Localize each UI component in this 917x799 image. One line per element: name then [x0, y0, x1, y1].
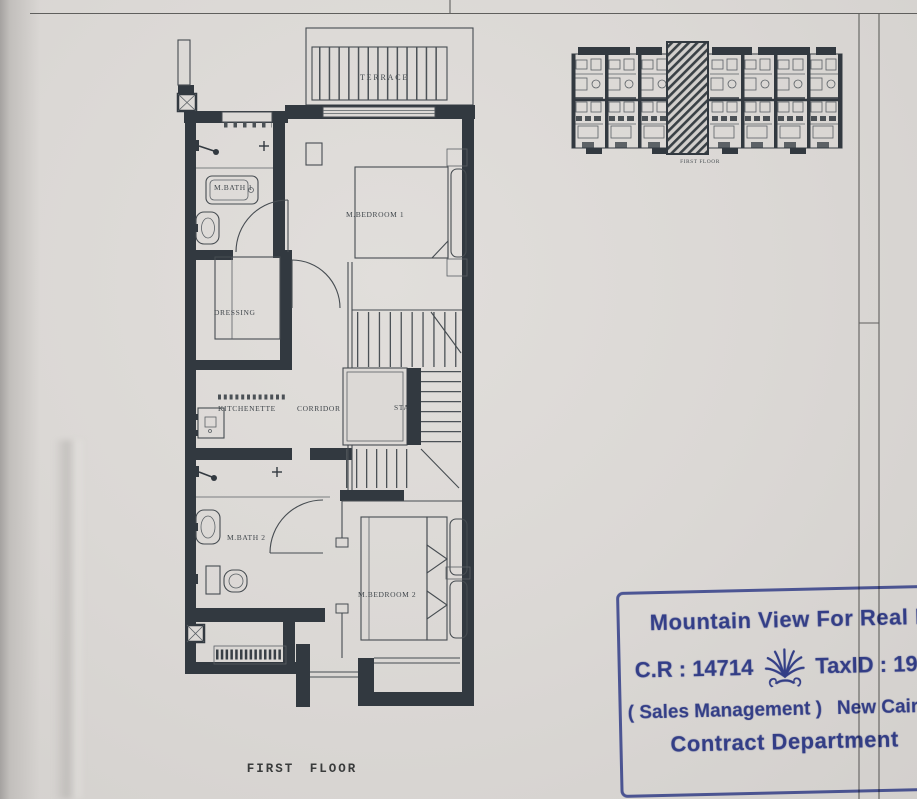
sink-icon: [194, 510, 220, 544]
mbath1-room: M.BATH 1: [194, 140, 273, 244]
utility-area: [214, 646, 286, 664]
keyplan-caption: FIRST FLOOR: [680, 159, 720, 165]
door-frame: [336, 538, 348, 547]
drain-cross-icon: [272, 467, 282, 477]
drain-cross-icon: [259, 141, 269, 151]
terrace-room: TERRACE: [306, 28, 473, 105]
room-label-mbedroom2: M.BEDROOM 2: [358, 590, 416, 599]
shaft-symbol-2: [187, 625, 204, 642]
bed-icon: [361, 517, 470, 640]
room-label-mbedroom1: M.BEDROOM 1: [346, 210, 404, 219]
stamp-branch: New Cairo Branc: [837, 695, 917, 720]
keyplan-core-hatch: [667, 42, 708, 154]
stamp-sales-management: ( Sales Management ): [628, 698, 823, 724]
stamp: Mountain View For Real Estat C.R : 14714…: [616, 584, 917, 798]
walls: [178, 85, 475, 707]
stamp-tax-id: TaxID : 1978: [815, 651, 917, 680]
door-arc: [270, 500, 323, 553]
stamp-department: Contract Department: [670, 725, 917, 758]
window: [323, 107, 435, 117]
sink-icon: [194, 212, 219, 244]
closet: [215, 257, 280, 339]
stamp-registration-row: C.R : 14714 TaxID : 1978: [634, 640, 917, 694]
palm-icon: [762, 644, 807, 691]
room-label-kitchenette: KITCHENETTE: [218, 404, 276, 413]
stamp-branch-row: ( Sales Management ) New Cairo Branc: [628, 695, 917, 725]
stair-core: STAIR: [343, 312, 462, 488]
room-label-corridor: CORRIDOR: [297, 404, 341, 413]
toilet-icon: [194, 566, 247, 594]
key-plan: FIRST FLOOR: [572, 42, 842, 165]
shower-head-icon: [194, 140, 219, 155]
dressing-room: DRESSING: [214, 257, 280, 339]
door-frame: [336, 604, 348, 613]
shaft-symbol: [178, 40, 196, 111]
mbath2-room: M.BATH 2: [194, 466, 330, 594]
stamp-cr-number: C.R : 14714: [634, 655, 753, 684]
room-label-mbath1: M.BATH 1: [214, 183, 253, 192]
door-arc: [292, 260, 340, 308]
mbedroom1-room: M.BEDROOM 1: [306, 143, 467, 276]
wall-niche: [306, 143, 322, 165]
mbedroom2-room: M.BEDROOM 2: [358, 517, 470, 640]
room-label-terrace: TERRACE: [360, 73, 409, 82]
kitchenette-area: KITCHENETTE CORRIDOR: [194, 397, 341, 438]
stamp-company: Mountain View For Real Estat: [649, 603, 917, 636]
shower-head-icon: [194, 466, 217, 481]
window: [222, 112, 272, 122]
plan-caption: FIRST FLOOR: [247, 762, 358, 776]
room-label-mbath2: M.BATH 2: [227, 533, 266, 542]
room-label-dressing: DRESSING: [214, 308, 255, 317]
unit-plan: TERRACE: [178, 28, 475, 776]
